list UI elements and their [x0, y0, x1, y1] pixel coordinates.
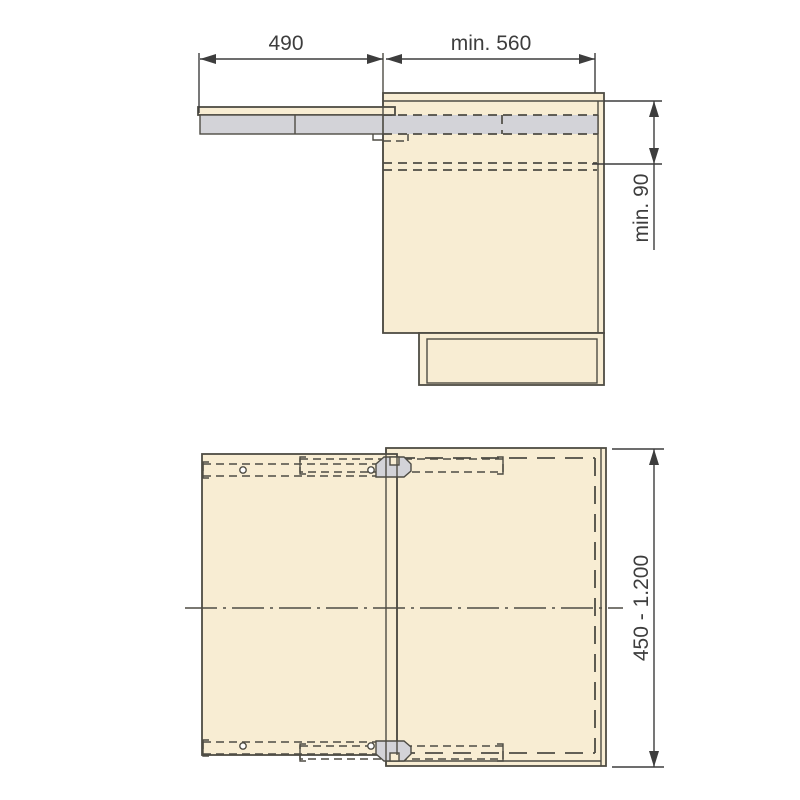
rail-screw-hole: [240, 467, 246, 473]
arrowhead-560-right: [579, 54, 595, 64]
arrowhead-450-up: [649, 449, 659, 465]
arrowhead-450-down: [649, 751, 659, 767]
arrowhead-560-left: [386, 54, 402, 64]
plan-view: [185, 448, 623, 766]
slide-rail-extended: [200, 115, 383, 134]
rail-screw-hole: [368, 743, 374, 749]
plinth-outer: [419, 333, 604, 385]
dim-label-560: min. 560: [451, 32, 532, 55]
rail-screw-hole: [240, 743, 246, 749]
technical-drawing-page: 490 min. 560 min. 90: [0, 0, 800, 800]
pullout-board: [198, 107, 395, 115]
dim-label-490: 490: [268, 32, 303, 55]
side-view: [198, 53, 604, 385]
arrowhead-90-down: [649, 148, 659, 164]
slide-rail-hidden: [383, 115, 598, 134]
arrowhead-490-right: [367, 54, 383, 64]
pullout-table-plan: [202, 454, 397, 755]
rail-bracket-solid: [373, 134, 383, 140]
arrowhead-90-up: [649, 101, 659, 117]
cabinet-plan: [386, 448, 606, 766]
pullout-table-mechanism-drawing: 490 min. 560 min. 90: [0, 0, 800, 800]
rail-screw-hole: [368, 467, 374, 473]
arrowhead-490-left: [200, 54, 216, 64]
dim-label-450-1200: 450 - 1.200: [630, 555, 653, 661]
dim-label-90: min. 90: [630, 174, 653, 243]
